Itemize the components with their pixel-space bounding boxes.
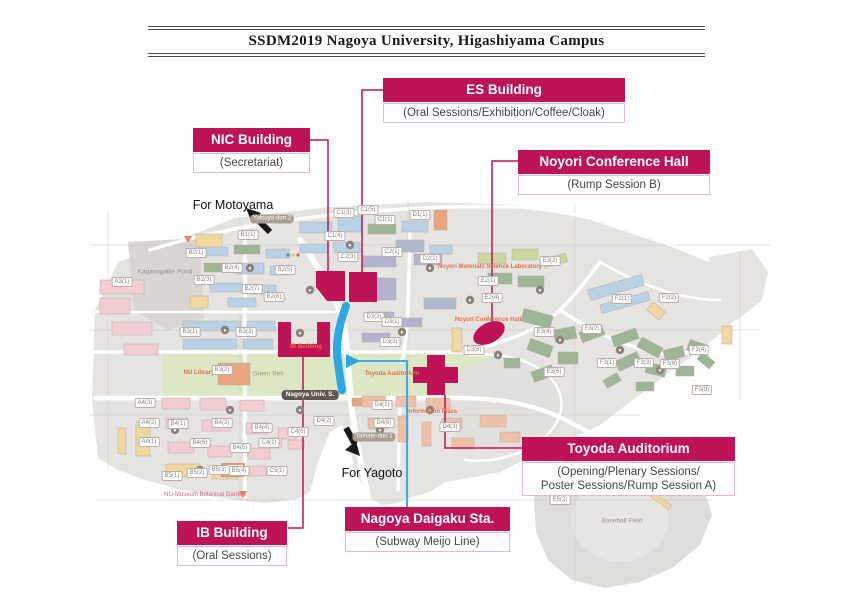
callout-subtitle: (Secretariat) — [193, 153, 310, 173]
bus-stop-dot-icon — [308, 396, 311, 399]
callout-subtitle: (Oral Sessions/Exhibition/Coffee/Cloak) — [383, 103, 625, 123]
svg-text:♥: ♥ — [429, 266, 432, 272]
svg-text:♥: ♥ — [429, 408, 432, 414]
page-title: SSDM2019 Nagoya University, Higashiyama … — [148, 29, 705, 54]
campus-map-page: { "title": "SSDM2019 Nagoya University, … — [0, 0, 843, 596]
callout-title: IB Building — [177, 521, 287, 545]
callout-title: Toyoda Auditorium — [522, 437, 735, 461]
callout-title: Noyori Conference Hall — [518, 150, 710, 174]
bus-stop-dot-icon — [291, 253, 294, 256]
svg-text:♥: ♥ — [199, 468, 202, 474]
callout-subtitle: (Subway Meijo Line) — [345, 532, 510, 552]
callout-nagoya-daigaku-station: Nagoya Daigaku Sta. (Subway Meijo Line) — [345, 507, 510, 552]
svg-text:♥: ♥ — [299, 331, 302, 337]
callout-subtitle: (Oral Sessions) — [177, 546, 287, 566]
callout-title: Nagoya Daigaku Sta. — [345, 507, 510, 531]
svg-text:♥: ♥ — [379, 428, 382, 434]
svg-text:♥: ♥ — [309, 288, 312, 294]
es-building-shape — [349, 272, 377, 302]
callout-title: NIC Building — [193, 128, 310, 152]
callout-nic-building: NIC Building (Secretariat) — [193, 128, 310, 173]
svg-text:♥: ♥ — [249, 266, 252, 272]
svg-text:♥: ♥ — [497, 353, 500, 359]
svg-text:♥: ♥ — [267, 294, 270, 300]
svg-text:♥: ♥ — [401, 330, 404, 336]
callout-subtitle: (Opening/Plenary Sessions/Poster Session… — [522, 462, 735, 496]
svg-text:♥: ♥ — [619, 348, 622, 354]
callout-es-building: ES Building (Oral Sessions/Exhibition/Co… — [383, 78, 625, 123]
bus-stop-dot-icon — [296, 253, 299, 256]
callout-subtitle-line: (Rump Session B) — [522, 178, 706, 192]
svg-text:♥: ♥ — [349, 243, 352, 249]
bus-stop-dot-icon — [286, 253, 289, 256]
callout-ib-building: IB Building (Oral Sessions) — [177, 521, 287, 566]
callout-subtitle-line: (Subway Meijo Line) — [349, 535, 506, 549]
svg-text:♥: ♥ — [469, 298, 472, 304]
bus-stop-dot-icon — [298, 396, 301, 399]
callout-title: ES Building — [383, 78, 625, 102]
svg-text:♥: ♥ — [659, 368, 662, 374]
svg-text:♥: ♥ — [229, 408, 232, 414]
title-bar: SSDM2019 Nagoya University, Higashiyama … — [148, 26, 705, 57]
callout-subtitle-line: (Opening/Plenary Sessions/ — [526, 465, 731, 479]
svg-text:♥: ♥ — [224, 328, 227, 334]
svg-text:♥: ♥ — [539, 288, 542, 294]
callout-subtitle-line: (Oral Sessions) — [181, 549, 283, 563]
svg-text:♥: ♥ — [299, 408, 302, 414]
callout-subtitle-line: (Oral Sessions/Exhibition/Coffee/Cloak) — [387, 106, 621, 120]
callout-subtitle: (Rump Session B) — [518, 175, 710, 195]
bus-stop-dot-icon — [303, 396, 306, 399]
callout-noyori-conference-hall: Noyori Conference Hall (Rump Session B) — [518, 150, 710, 195]
callout-toyoda-auditorium: Toyoda Auditorium (Opening/Plenary Sessi… — [522, 437, 735, 496]
svg-text:♥: ♥ — [174, 428, 177, 434]
svg-text:♥: ♥ — [559, 338, 562, 344]
callout-subtitle-line: Poster Sessions/Rump Session A) — [526, 479, 731, 493]
callout-subtitle-line: (Secretariat) — [197, 156, 306, 170]
